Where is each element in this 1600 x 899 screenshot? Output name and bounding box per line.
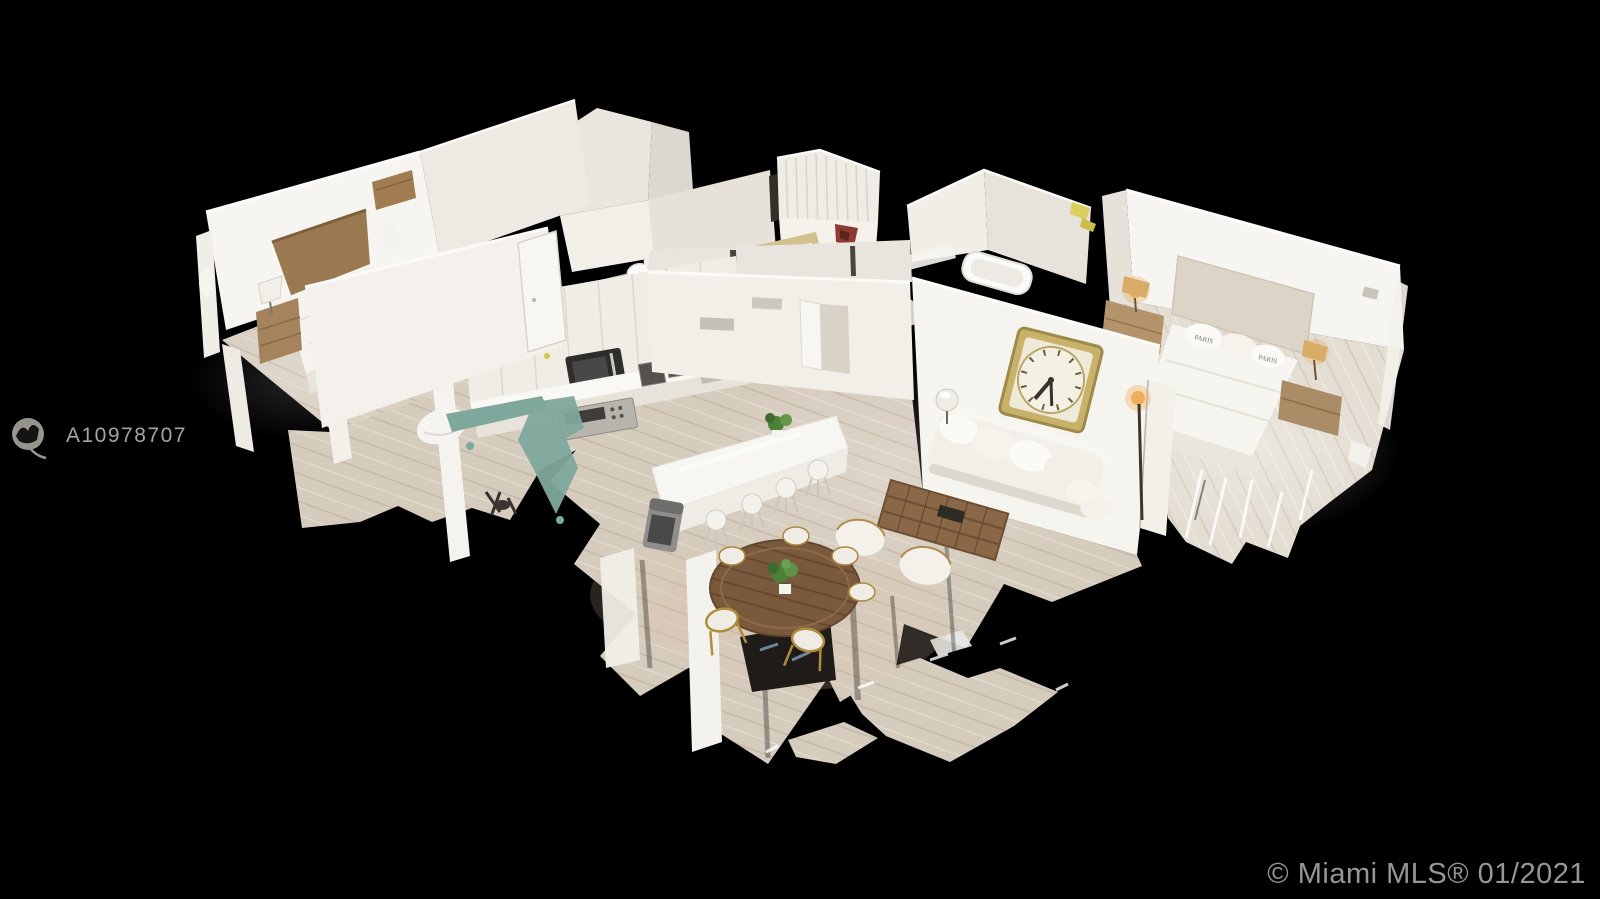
mls-realtor-logo-icon: [8, 412, 52, 460]
hallway-door: [800, 300, 822, 370]
watermark: A10978707: [8, 412, 187, 460]
floor-wall-fragment-2: [600, 548, 640, 668]
ac-vent-2: [752, 297, 783, 310]
listing-id: A10978707: [66, 424, 187, 448]
ac-vent: [700, 317, 735, 331]
hallway-door-recess: [820, 304, 850, 374]
dollhouse-3d-view: PARIS PARIS: [0, 0, 1600, 899]
sofa-drape: [1080, 497, 1112, 519]
copyright-text: © Miami MLS® 01/2021: [1267, 858, 1586, 891]
mls-listing-photo: PARIS PARIS: [0, 0, 1600, 899]
